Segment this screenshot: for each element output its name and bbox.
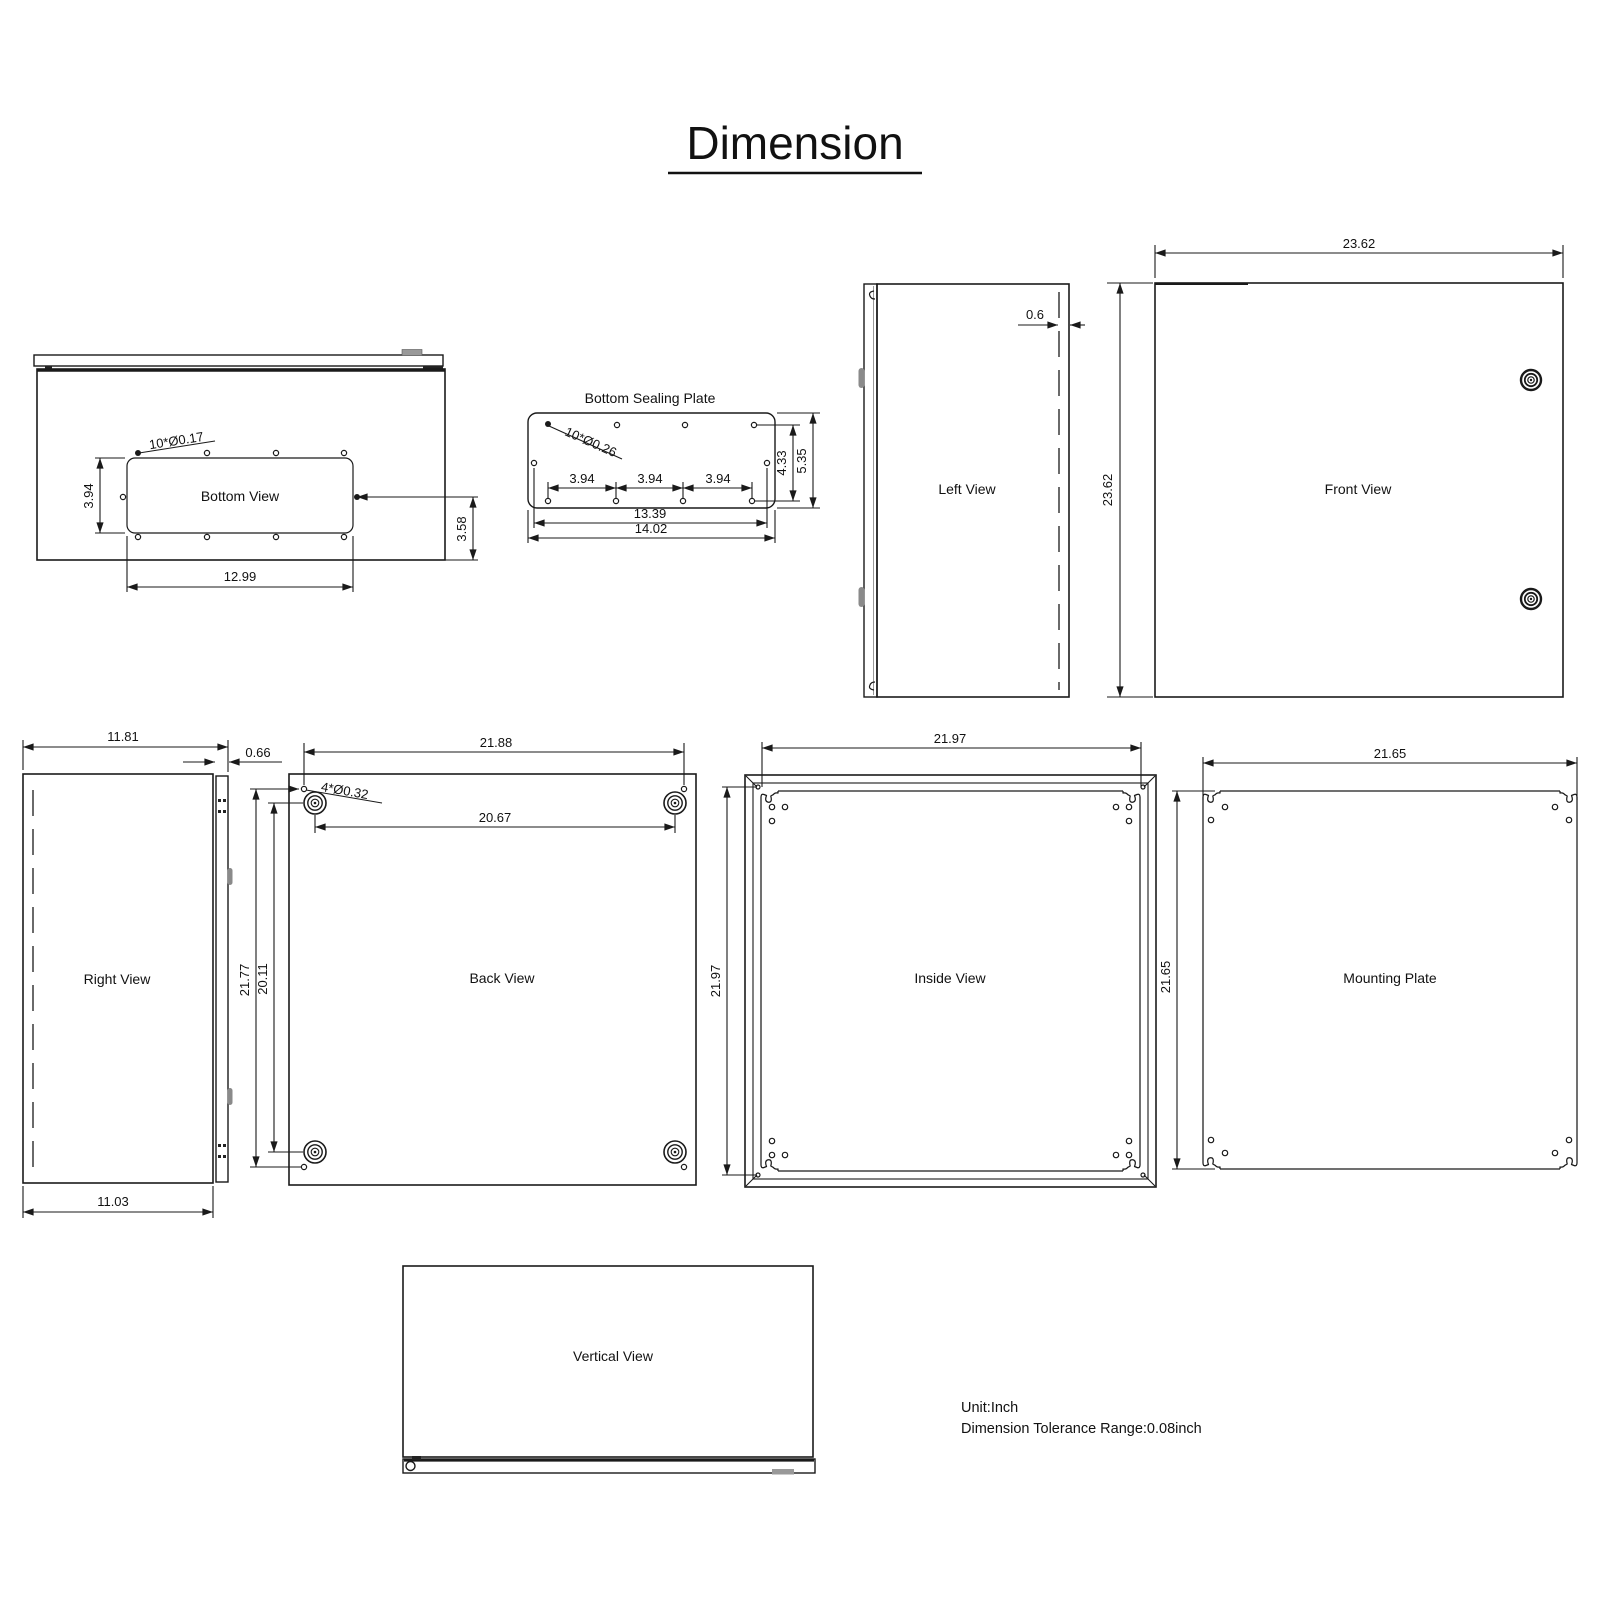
hole <box>1141 785 1145 789</box>
dim-label-pitch1: 3.94 <box>569 471 594 486</box>
hole <box>682 422 687 427</box>
boss-center <box>314 1151 317 1154</box>
plate-corner-notch <box>1560 1154 1577 1169</box>
dim-label-hole-span: 13.39 <box>634 506 667 521</box>
view-label: Inside View <box>914 970 986 986</box>
boss-center <box>674 802 677 805</box>
technical-drawing: Dimension 10*Ø0.17 3.94 12.99 <box>0 0 1600 1600</box>
dim-label-width-with-door: 11.81 <box>107 729 139 744</box>
hole <box>1113 1152 1118 1157</box>
dim-label-holes: 10*Ø0.26 <box>563 424 619 460</box>
hole <box>1222 1150 1227 1155</box>
hole <box>1126 1138 1131 1143</box>
view-label: Bottom Sealing Plate <box>585 390 716 406</box>
hole <box>1222 804 1227 809</box>
bottom-view: 10*Ø0.17 3.94 12.99 3.58 Bottom View <box>34 350 478 593</box>
left-view: Left View 0.6 <box>859 284 1086 697</box>
door-lock-top <box>1521 370 1541 390</box>
plate-corner-notch <box>1203 1154 1220 1169</box>
plate-corner-notch <box>1560 791 1577 806</box>
boss <box>664 792 686 814</box>
hole <box>681 1164 686 1169</box>
hinge <box>859 368 865 388</box>
hole <box>613 498 618 503</box>
view-label: Vertical View <box>573 1348 654 1364</box>
plate-corner-notch <box>761 791 778 806</box>
hole <box>531 460 536 465</box>
hole <box>1113 804 1118 809</box>
dim-label-height: 21.77 <box>237 964 252 997</box>
hole <box>1208 817 1213 822</box>
hole <box>1566 817 1571 822</box>
dim-label-holes: 10*Ø0.17 <box>148 429 205 452</box>
dim-label-pitch3: 3.94 <box>705 471 730 486</box>
view-label: Right View <box>84 971 152 987</box>
plate-corner-notch <box>1203 791 1220 806</box>
hinge-screw-dots <box>218 799 226 1158</box>
dim-label-depth: 11.03 <box>97 1194 129 1209</box>
hole <box>1126 1152 1131 1157</box>
hole <box>1126 804 1131 809</box>
door-hook-top <box>870 291 876 299</box>
hole <box>341 450 346 455</box>
dim-label-width: 21.65 <box>1374 746 1407 761</box>
hole <box>204 534 209 539</box>
dim-label-holes: 4*Ø0.32 <box>320 779 370 802</box>
hole <box>545 498 550 503</box>
hole <box>769 1138 774 1143</box>
bottom-sealing-plate: Bottom Sealing Plate 10*Ø0.26 3.94 3.94 … <box>528 390 820 543</box>
hole <box>135 534 140 539</box>
boss <box>304 792 326 814</box>
door-hook-bottom <box>870 682 876 690</box>
hole <box>120 494 125 499</box>
dim-label-door: 0.66 <box>245 745 270 760</box>
lock-center <box>1530 379 1532 381</box>
hole <box>749 498 754 503</box>
plate-corner-notch <box>1123 1156 1140 1171</box>
hole <box>1141 1173 1145 1177</box>
bottom-view-body-outline <box>37 369 445 560</box>
hole <box>301 1164 306 1169</box>
dim-label-height: 21.65 <box>1158 961 1173 994</box>
dim-label-width: 23.62 <box>1343 236 1376 251</box>
hole <box>681 786 686 791</box>
boss <box>664 1141 686 1163</box>
hole <box>273 450 278 455</box>
bottom-view-top-bar <box>34 355 443 366</box>
hole <box>680 498 685 503</box>
dim-label-height: 3.94 <box>81 483 96 508</box>
door-edge-outline <box>216 776 228 1182</box>
door-lock-bottom <box>1521 589 1541 609</box>
hole <box>273 534 278 539</box>
view-label: Left View <box>938 481 996 497</box>
boss-center <box>314 802 317 805</box>
hole <box>1208 1137 1213 1142</box>
plate-outline <box>528 413 775 508</box>
hole <box>769 1152 774 1157</box>
note-tolerance: Dimension Tolerance Range:0.08inch <box>961 1421 1202 1437</box>
mounting-plate: Mounting Plate 21.65 21.65 <box>1158 746 1577 1169</box>
vertical-view: Vertical View <box>403 1266 815 1475</box>
dim-label-width: 21.88 <box>480 735 513 750</box>
hole <box>1552 804 1557 809</box>
back-view: Back View 21.88 4*Ø0.32 20.67 21.77 20.1… <box>237 735 696 1185</box>
hole <box>751 422 756 427</box>
hole <box>341 534 346 539</box>
door-edge-outline <box>864 284 877 697</box>
dim-label-boss-span-v: 20.11 <box>255 963 270 995</box>
hole <box>764 460 769 465</box>
hole <box>301 786 306 791</box>
hinge <box>859 587 865 607</box>
boss-center <box>674 1151 677 1154</box>
plate-corner-notch <box>761 1156 778 1171</box>
view-label: Mounting Plate <box>1343 970 1437 986</box>
hole <box>1126 818 1131 823</box>
view-label: Front View <box>1325 481 1393 497</box>
hinge <box>228 868 233 885</box>
dim-label-hole-height: 4.33 <box>774 450 789 475</box>
hole <box>204 450 209 455</box>
hole <box>614 422 619 427</box>
front-view: Front View 23.62 23.62 <box>1100 236 1563 697</box>
dim-label-door: 0.6 <box>1026 307 1044 322</box>
hole <box>1566 1137 1571 1142</box>
hole <box>769 818 774 823</box>
latch-tab <box>772 1469 794 1475</box>
page-title: Dimension <box>686 117 903 169</box>
dim-label-boss-span-h: 20.67 <box>479 810 512 825</box>
bottom-view-latch-tab <box>402 350 422 356</box>
hinge-pin <box>406 1462 415 1471</box>
notes: Unit:Inch Dimension Tolerance Range:0.08… <box>961 1400 1202 1437</box>
inside-view: Inside View 21.97 21.97 <box>708 731 1156 1187</box>
hole <box>782 1152 787 1157</box>
dim-label-width: 12.99 <box>224 569 257 584</box>
extension-lines <box>268 803 303 1152</box>
hole <box>1552 1150 1557 1155</box>
hole <box>782 804 787 809</box>
dim-label-pitch2: 3.94 <box>637 471 662 486</box>
hole <box>769 804 774 809</box>
view-label: Bottom View <box>201 488 280 504</box>
dim-label-height: 21.97 <box>708 965 723 998</box>
dimension-drawing-page: Dimension 10*Ø0.17 3.94 12.99 <box>0 0 1600 1600</box>
lock-center <box>1530 598 1532 600</box>
plate-corner-notch <box>1123 791 1140 806</box>
dim-label-width: 21.97 <box>934 731 967 746</box>
hinge <box>228 1088 233 1105</box>
dim-label-height: 5.35 <box>794 448 809 473</box>
dim-label-side: 3.58 <box>454 516 469 541</box>
hinge-mark <box>412 1456 421 1460</box>
extension-lines <box>23 740 228 772</box>
view-label: Back View <box>469 970 535 986</box>
dim-label-height: 23.62 <box>1100 474 1115 507</box>
dim-label-width: 14.02 <box>635 521 668 536</box>
note-unit: Unit:Inch <box>961 1400 1018 1416</box>
extension-lines <box>1172 791 1215 1169</box>
boss <box>304 1141 326 1163</box>
extension-lines <box>762 742 1141 787</box>
